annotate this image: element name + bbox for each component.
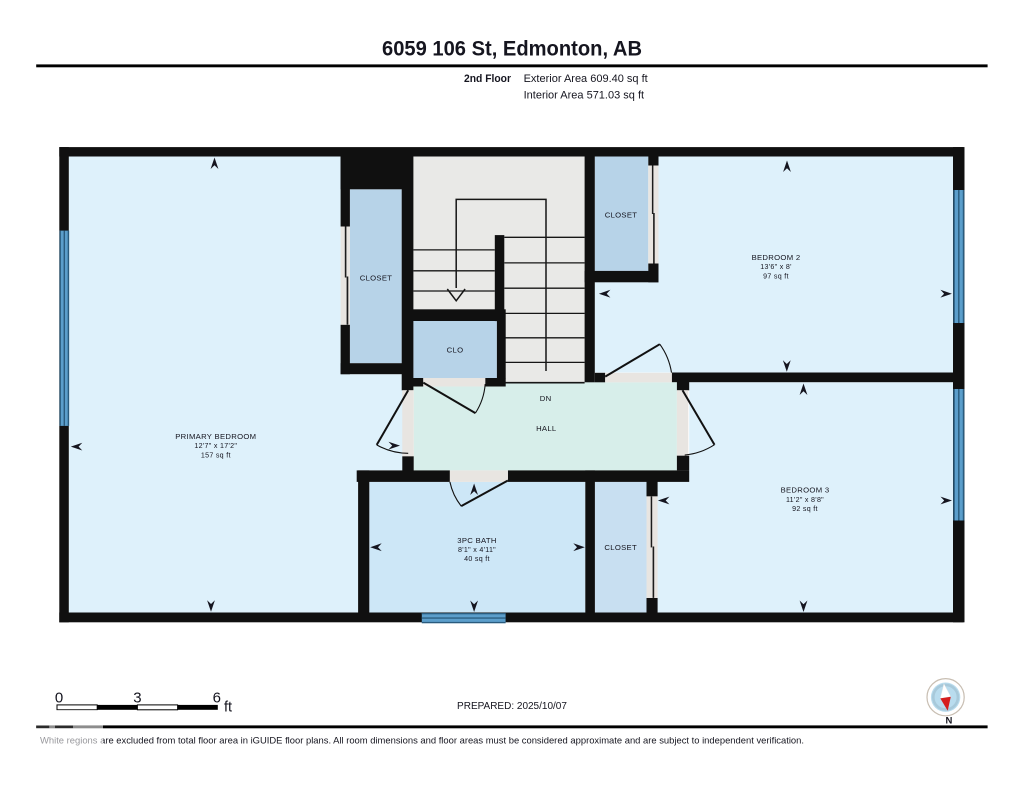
- svg-text:CLOSET: CLOSET: [360, 273, 393, 282]
- svg-text:8'1" x 4'11": 8'1" x 4'11": [458, 546, 496, 554]
- svg-text:12'7" x 17'2": 12'7" x 17'2": [194, 442, 237, 450]
- svg-text:13'6" x 8': 13'6" x 8': [760, 263, 792, 271]
- svg-text:6059 106 St, Edmonton, AB: 6059 106 St, Edmonton, AB: [382, 37, 642, 61]
- svg-text:0: 0: [55, 690, 63, 707]
- svg-text:White regions are excluded fro: White regions are excluded from total fl…: [40, 736, 804, 746]
- svg-text:CLOSET: CLOSET: [605, 211, 638, 220]
- svg-text:Interior Area 571.03 sq ft: Interior Area 571.03 sq ft: [524, 89, 644, 101]
- svg-text:HALL: HALL: [536, 424, 557, 433]
- svg-text:97 sq ft: 97 sq ft: [763, 272, 789, 280]
- svg-text:11'2" x 8'8": 11'2" x 8'8": [786, 496, 824, 504]
- svg-text:157 sq ft: 157 sq ft: [201, 451, 231, 459]
- svg-text:6: 6: [213, 690, 221, 707]
- svg-text:CLO: CLO: [447, 345, 464, 354]
- svg-text:PREPARED: 2025/10/07: PREPARED: 2025/10/07: [457, 701, 567, 712]
- svg-text:BEDROOM 3: BEDROOM 3: [781, 485, 830, 494]
- svg-text:N: N: [945, 716, 952, 727]
- svg-text:ft: ft: [224, 700, 232, 716]
- svg-text:40 sq ft: 40 sq ft: [464, 555, 490, 563]
- svg-text:PRIMARY BEDROOM: PRIMARY BEDROOM: [175, 432, 256, 441]
- svg-text:2nd Floor: 2nd Floor: [464, 73, 512, 85]
- svg-text:BEDROOM 2: BEDROOM 2: [752, 253, 801, 262]
- svg-text:3PC BATH: 3PC BATH: [457, 536, 496, 545]
- svg-text:92 sq ft: 92 sq ft: [792, 505, 818, 513]
- svg-text:Exterior Area 609.40 sq ft: Exterior Area 609.40 sq ft: [524, 73, 648, 85]
- svg-text:CLOSET: CLOSET: [604, 543, 637, 552]
- svg-text:3: 3: [133, 690, 141, 707]
- svg-text:DN: DN: [540, 394, 552, 403]
